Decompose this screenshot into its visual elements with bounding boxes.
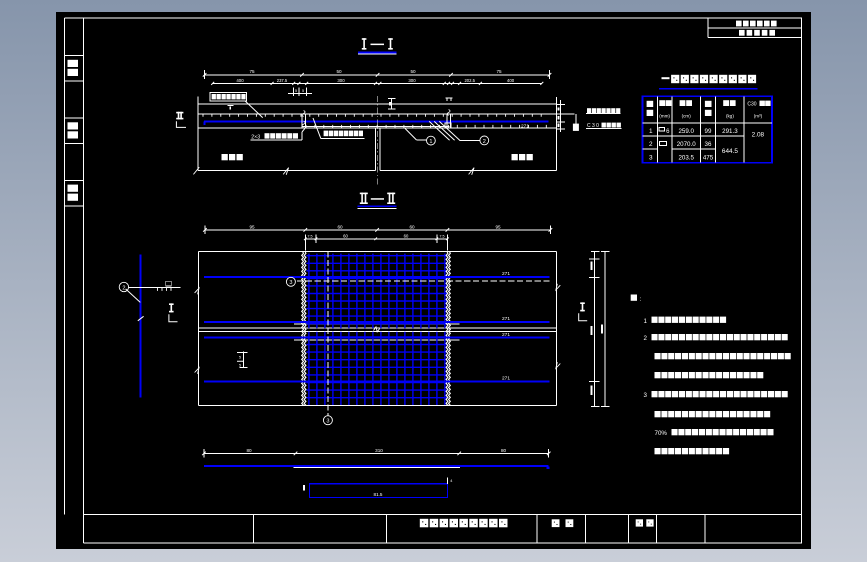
svg-text:3: 3	[289, 280, 292, 286]
svg-text:3: 3	[644, 392, 648, 399]
svg-text:1: 1	[644, 318, 648, 325]
svg-text:2: 2	[649, 141, 653, 148]
svg-text:1: 1	[649, 128, 653, 135]
svg-text:3: 3	[649, 155, 653, 162]
svg-text:80: 80	[501, 448, 507, 453]
svg-text:(mm): (mm)	[659, 114, 670, 119]
svg-text:50: 50	[336, 69, 342, 74]
svg-text:75: 75	[249, 69, 255, 74]
svg-text:644.5: 644.5	[722, 148, 738, 155]
svg-text:3: 3	[326, 419, 329, 425]
svg-text:271: 271	[521, 123, 529, 129]
svg-text:(m³): (m³)	[754, 114, 763, 119]
svg-text:259.0: 259.0	[678, 128, 694, 135]
svg-text:1: 1	[429, 139, 432, 145]
svg-text:60: 60	[409, 224, 415, 229]
svg-text:2070.0: 2070.0	[677, 141, 696, 148]
svg-text:60: 60	[404, 233, 409, 238]
svg-text:237.5: 237.5	[277, 78, 288, 83]
svg-text:310: 310	[375, 448, 383, 453]
svg-text:291.3: 291.3	[722, 128, 738, 135]
svg-text:60: 60	[337, 224, 343, 229]
svg-text:5: 5	[239, 356, 241, 360]
svg-text:99: 99	[705, 128, 712, 135]
svg-text:2.08: 2.08	[752, 132, 765, 139]
svg-text:36: 36	[705, 141, 712, 148]
svg-text:5: 5	[295, 89, 297, 93]
svg-text:70%: 70%	[655, 430, 668, 437]
svg-text:75: 75	[496, 69, 502, 74]
svg-text:203.5: 203.5	[678, 155, 694, 162]
svg-text:81.5: 81.5	[374, 492, 383, 497]
svg-text:400: 400	[507, 78, 515, 83]
svg-text:271: 271	[502, 271, 510, 277]
svg-text:300: 300	[337, 78, 345, 83]
svg-text:7.5: 7.5	[308, 234, 313, 238]
svg-text:95: 95	[495, 224, 501, 229]
svg-text:7.5: 7.5	[440, 234, 445, 238]
svg-text:202.5: 202.5	[464, 78, 475, 83]
svg-text:80: 80	[246, 448, 252, 453]
svg-text:4: 4	[450, 479, 452, 483]
svg-text:95: 95	[249, 224, 255, 229]
svg-text:475: 475	[703, 155, 714, 162]
svg-text:400: 400	[236, 78, 244, 83]
svg-text:(kg): (kg)	[726, 114, 734, 119]
svg-text:5: 5	[302, 89, 304, 93]
svg-text:(cm): (cm)	[682, 114, 692, 119]
svg-text:60: 60	[343, 233, 348, 238]
svg-text:271: 271	[502, 332, 510, 338]
svg-text:2: 2	[483, 139, 486, 145]
svg-text:5: 5	[239, 364, 241, 368]
svg-text:2: 2	[644, 335, 648, 342]
svg-text:50: 50	[410, 69, 416, 74]
svg-text:271: 271	[502, 316, 510, 322]
svg-text:C30: C30	[747, 102, 756, 108]
svg-text:271: 271	[502, 376, 510, 382]
svg-text:2: 2	[122, 286, 125, 292]
svg-text:300: 300	[408, 78, 416, 83]
